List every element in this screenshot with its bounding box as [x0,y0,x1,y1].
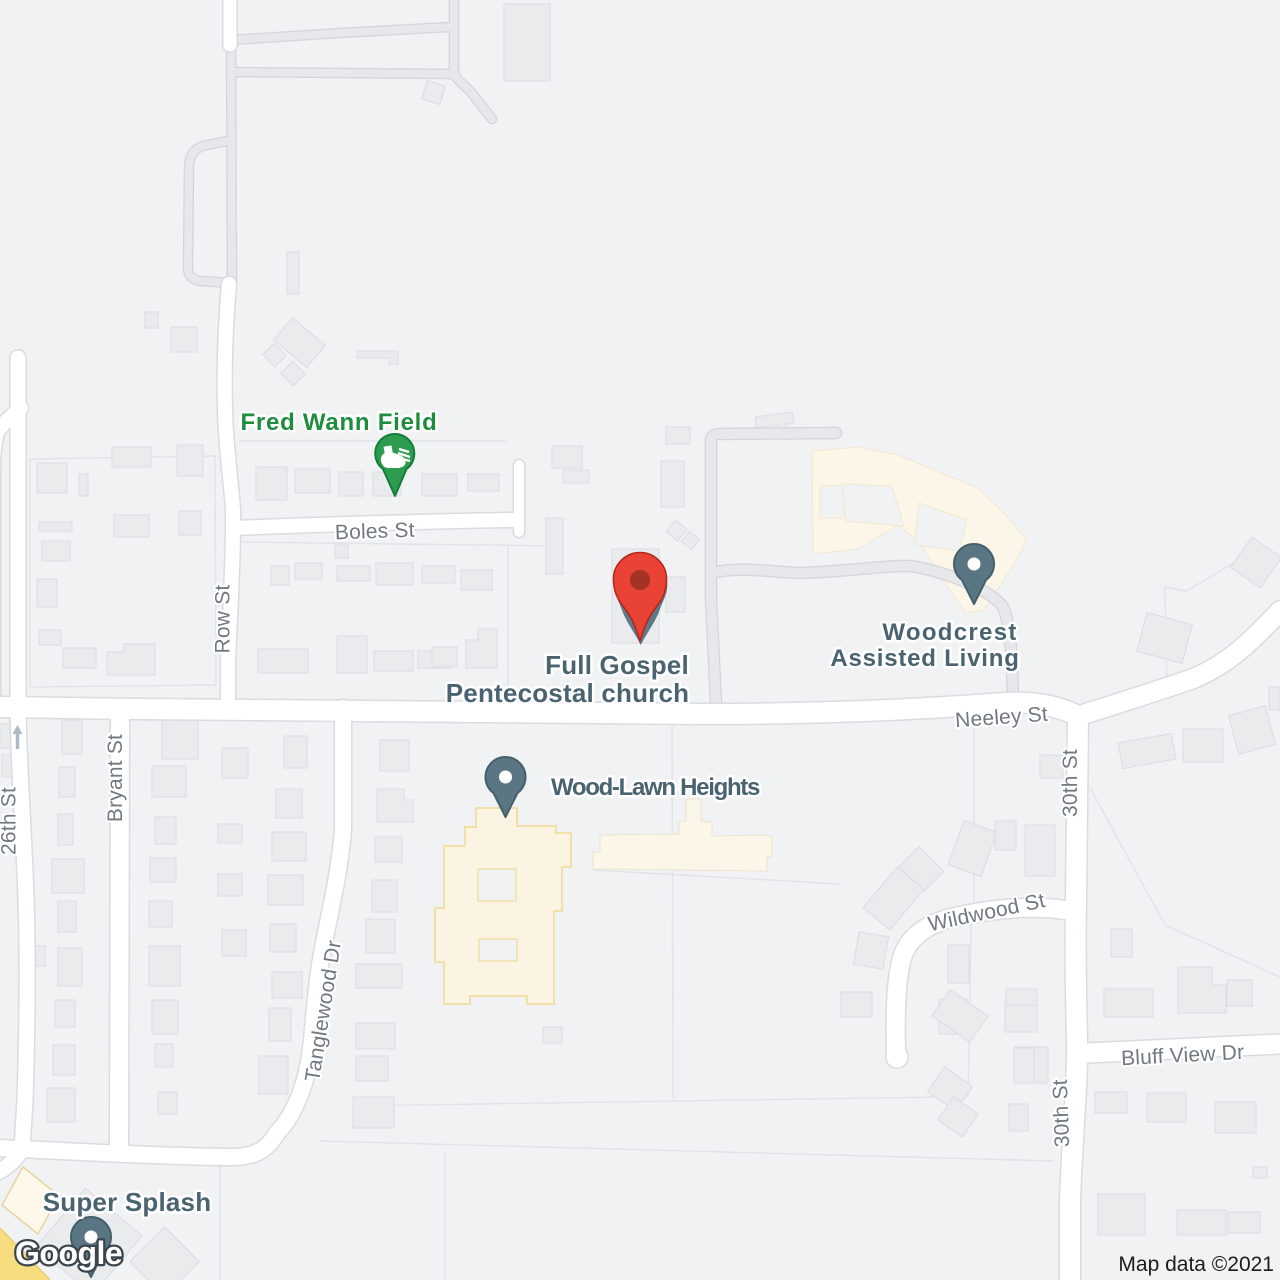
svg-text:Google: Google [15,1235,122,1271]
svg-text:26th St: 26th St [0,787,21,855]
svg-text:Bryant St: Bryant St [104,734,127,822]
svg-text:30th St: 30th St [1049,1079,1074,1148]
svg-text:Full Gospel: Full Gospel [545,650,689,680]
svg-text:Row St: Row St [212,585,235,654]
svg-text:Assisted Living: Assisted Living [830,645,1019,672]
svg-text:Wood-Lawn Heights: Wood-Lawn Heights [551,774,760,801]
svg-text:Pentecostal church: Pentecostal church [446,678,689,708]
svg-text:Super Splash: Super Splash [43,1187,212,1217]
svg-text:Boles St: Boles St [334,519,415,545]
svg-text:30th St: 30th St [1059,749,1082,817]
svg-text:Map data ©2021: Map data ©2021 [1118,1253,1274,1276]
svg-text:Fred Wann Field: Fred Wann Field [240,409,437,436]
svg-text:Woodcrest: Woodcrest [882,619,1017,646]
